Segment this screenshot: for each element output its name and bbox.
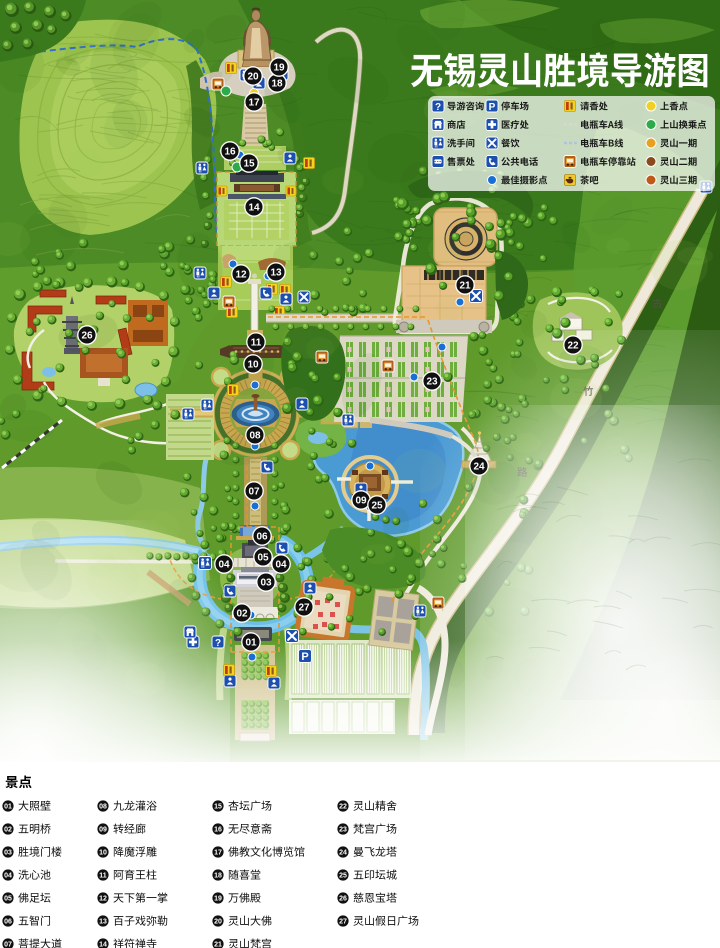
svg-text:03: 03 bbox=[4, 850, 12, 857]
svg-text:16: 16 bbox=[214, 827, 222, 834]
svg-text:16: 16 bbox=[224, 146, 236, 157]
svg-text:06: 06 bbox=[256, 531, 268, 542]
svg-text:21: 21 bbox=[214, 942, 222, 948]
svg-text:09: 09 bbox=[355, 495, 367, 506]
svg-text:17: 17 bbox=[248, 97, 260, 108]
svg-text:27: 27 bbox=[339, 919, 347, 926]
svg-text:24: 24 bbox=[473, 461, 485, 472]
svg-text:P: P bbox=[301, 651, 308, 663]
svg-text:22: 22 bbox=[567, 340, 579, 351]
svg-text:13: 13 bbox=[270, 267, 282, 278]
svg-text:12: 12 bbox=[235, 269, 247, 280]
svg-text:08: 08 bbox=[249, 430, 261, 441]
svg-text:11: 11 bbox=[99, 873, 107, 880]
svg-text:04: 04 bbox=[275, 559, 287, 570]
svg-text:10: 10 bbox=[247, 359, 259, 370]
svg-text:18: 18 bbox=[214, 873, 222, 880]
svg-text:?: ? bbox=[215, 638, 221, 649]
svg-text:17: 17 bbox=[214, 850, 222, 857]
svg-text:01: 01 bbox=[245, 637, 257, 648]
svg-text:10: 10 bbox=[99, 850, 107, 857]
svg-text:02: 02 bbox=[236, 608, 248, 619]
svg-text:20: 20 bbox=[214, 919, 222, 926]
svg-text:23: 23 bbox=[339, 827, 347, 834]
svg-text:P: P bbox=[489, 102, 496, 113]
svg-text:11: 11 bbox=[251, 337, 262, 348]
svg-text:19: 19 bbox=[214, 896, 222, 903]
svg-text:27: 27 bbox=[298, 602, 310, 613]
svg-text:12: 12 bbox=[99, 896, 107, 903]
svg-text:14: 14 bbox=[248, 202, 260, 213]
svg-text:07: 07 bbox=[248, 486, 260, 497]
svg-text:26: 26 bbox=[339, 896, 347, 903]
svg-text:26: 26 bbox=[81, 330, 93, 341]
svg-text:06: 06 bbox=[4, 919, 12, 926]
svg-text:23: 23 bbox=[426, 376, 438, 387]
svg-text:21: 21 bbox=[459, 280, 471, 291]
svg-text:07: 07 bbox=[4, 942, 12, 948]
svg-text:05: 05 bbox=[257, 552, 269, 563]
svg-text:24: 24 bbox=[339, 850, 347, 857]
svg-text:01: 01 bbox=[4, 804, 12, 811]
svg-text:03: 03 bbox=[260, 577, 272, 588]
svg-text:25: 25 bbox=[339, 873, 347, 880]
svg-text:04: 04 bbox=[218, 559, 230, 570]
svg-text:09: 09 bbox=[99, 827, 107, 834]
svg-text:18: 18 bbox=[271, 78, 283, 89]
svg-text:14: 14 bbox=[99, 942, 107, 948]
svg-text:08: 08 bbox=[99, 804, 107, 811]
svg-text:19: 19 bbox=[273, 62, 285, 73]
svg-text:?: ? bbox=[435, 102, 441, 113]
svg-text:13: 13 bbox=[99, 919, 107, 926]
svg-text:15: 15 bbox=[214, 804, 222, 811]
svg-text:25: 25 bbox=[371, 500, 383, 511]
svg-text:05: 05 bbox=[4, 896, 12, 903]
svg-text:02: 02 bbox=[4, 827, 12, 834]
svg-text:22: 22 bbox=[339, 804, 347, 811]
svg-text:04: 04 bbox=[4, 873, 12, 880]
svg-text:20: 20 bbox=[247, 71, 259, 82]
svg-text:15: 15 bbox=[243, 158, 255, 169]
